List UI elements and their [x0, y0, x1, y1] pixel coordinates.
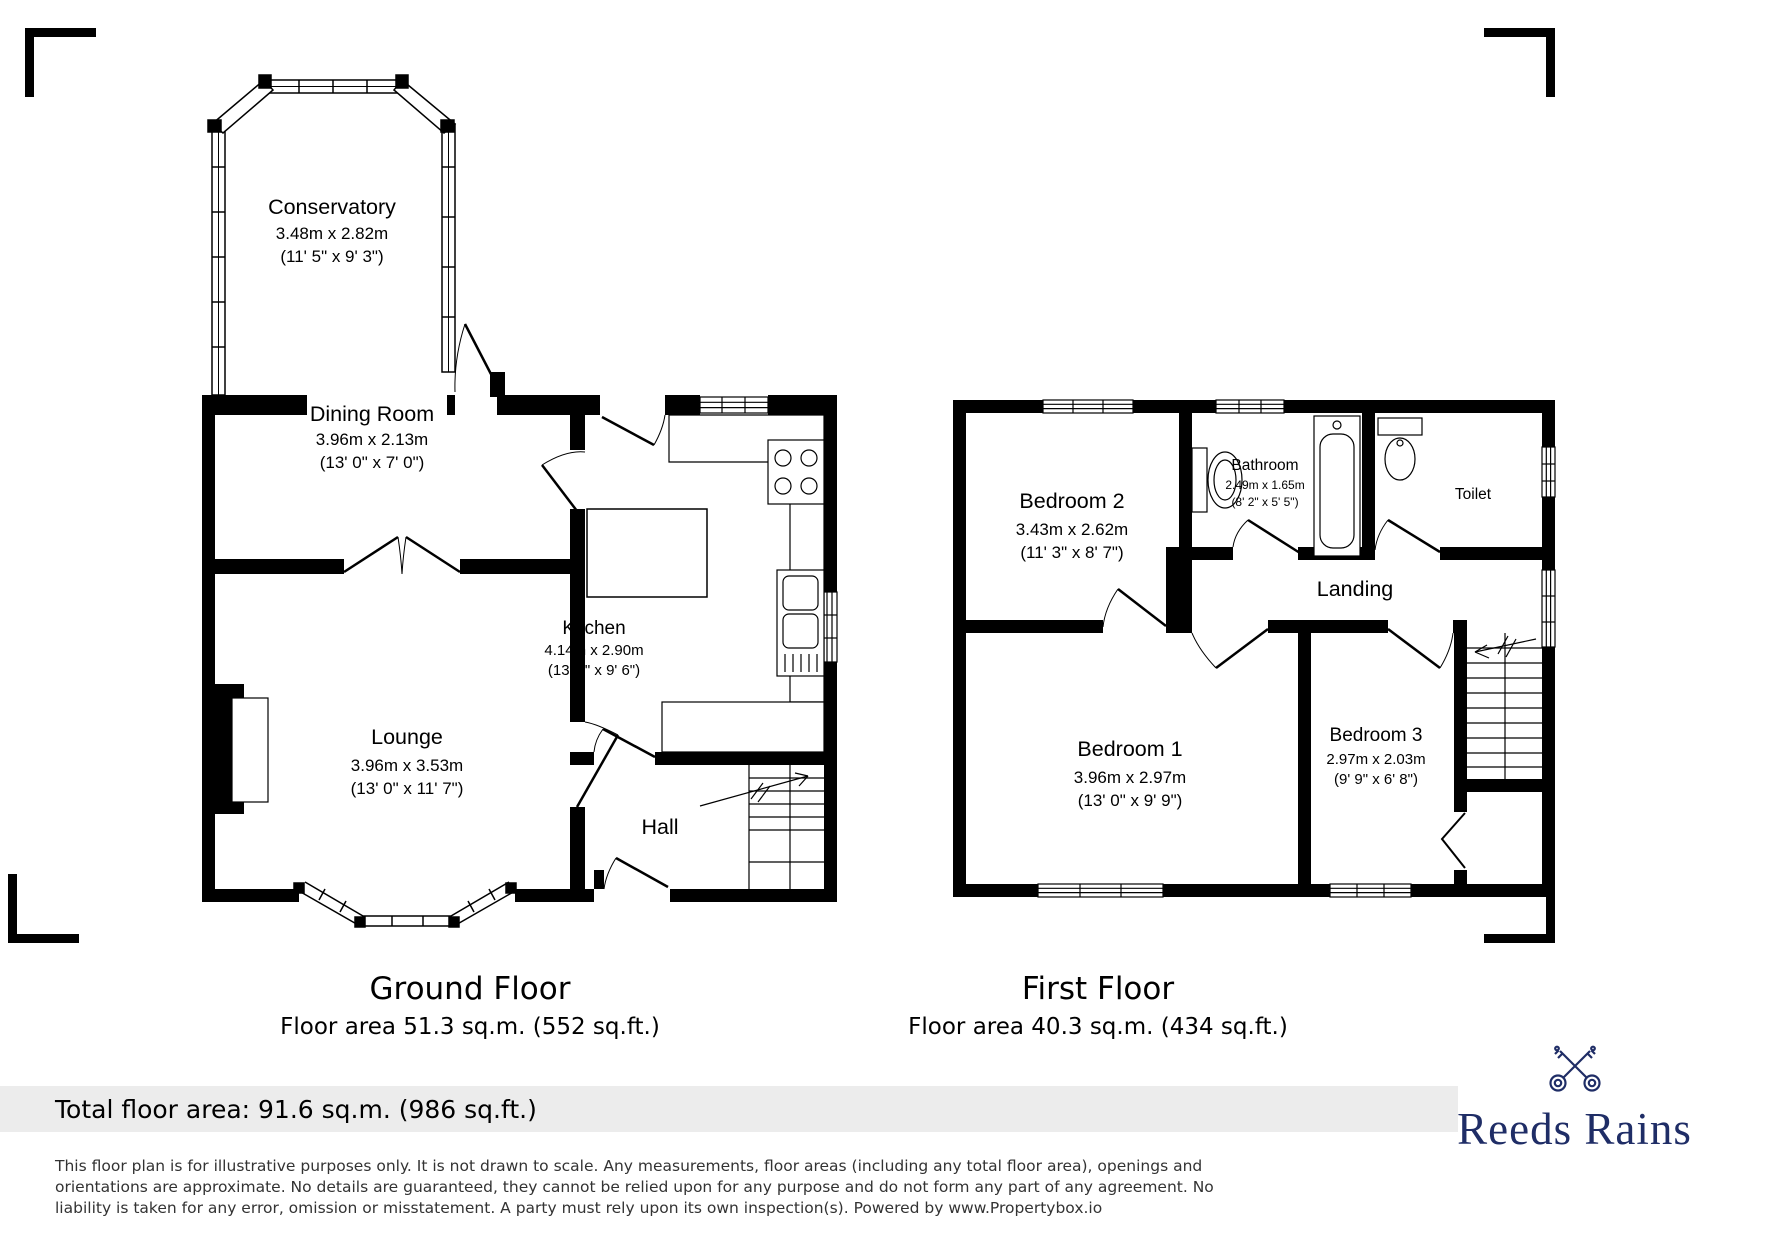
- hob-icon: [768, 440, 824, 504]
- bay-window: [294, 882, 516, 927]
- ground-floor-plan: Conservatory 3.48m x 2.82m (11' 5" x 9' …: [202, 62, 842, 942]
- room-dims-bathroom-imperial: (8' 2" x 5' 5"): [1231, 495, 1298, 509]
- room-label-kitchen: Kitchen: [562, 618, 625, 639]
- room-dims-conservatory-metric: 3.48m x 2.82m: [276, 224, 388, 243]
- room-dims-conservatory-imperial: (11' 5" x 9' 3"): [280, 247, 383, 266]
- room-label-hall: Hall: [641, 815, 678, 839]
- room-dims-bedroom-3-metric: 2.97m x 2.03m: [1326, 751, 1425, 768]
- crossed-keys-icon: [1543, 1042, 1607, 1098]
- room-label-bedroom-3: Bedroom 3: [1330, 725, 1423, 746]
- brand-wordmark: Reeds Rains: [1432, 1103, 1717, 1155]
- fireplace-recess: [232, 698, 268, 802]
- wc-icon: [1378, 418, 1422, 480]
- room-dims-kitchen-metric: 4.14m x 2.90m: [544, 642, 643, 659]
- ground-floor-title: Ground Floor: [170, 972, 770, 1006]
- room-label-bedroom-2: Bedroom 2: [1019, 489, 1124, 513]
- room-dims-lounge-metric: 3.96m x 3.53m: [351, 756, 463, 775]
- room-label-dining-room: Dining Room: [310, 402, 434, 426]
- first-walls: [953, 400, 1555, 897]
- total-area-bar: Total floor area: 91.6 sq.m. (986 sq.ft.…: [0, 1086, 1458, 1132]
- first-floor-area: Floor area 40.3 sq.m. (434 sq.ft.): [798, 1014, 1398, 1040]
- floorplan-page: Conservatory 3.48m x 2.82m (11' 5" x 9' …: [0, 0, 1771, 1239]
- room-dims-bedroom-1-imperial: (13' 0" x 9' 9"): [1078, 791, 1183, 810]
- room-dims-dining-metric: 3.96m x 2.13m: [316, 430, 428, 449]
- bath-icon: [1314, 416, 1360, 556]
- first-floor-title-block: First Floor Floor area 40.3 sq.m. (434 s…: [798, 972, 1398, 1040]
- room-dims-bedroom-3-imperial: (9' 9" x 6' 8"): [1334, 771, 1418, 788]
- ground-floor-title-block: Ground Floor Floor area 51.3 sq.m. (552 …: [170, 972, 770, 1040]
- room-label-landing: Landing: [1317, 577, 1394, 601]
- total-floor-area: Total floor area: 91.6 sq.m. (986 sq.ft.…: [55, 1095, 537, 1124]
- kitchen-island: [587, 509, 707, 597]
- brand-logo: Reeds Rains: [1432, 1042, 1717, 1155]
- ground-floor-area: Floor area 51.3 sq.m. (552 sq.ft.): [170, 1014, 770, 1040]
- room-label-bathroom: Bathroom: [1231, 457, 1298, 474]
- kitchen-back-window: [700, 397, 768, 413]
- room-dims-bedroom-1-metric: 3.96m x 2.97m: [1074, 768, 1186, 787]
- room-dims-bedroom-2-imperial: (11' 3" x 8' 7"): [1020, 543, 1123, 562]
- first-floor-plan: Bedroom 2 3.43m x 2.62m (11' 3" x 8' 7")…: [948, 392, 1560, 904]
- cupboard-bifold-door: [1442, 813, 1465, 868]
- room-dims-kitchen-imperial: (13' 7" x 9' 6"): [548, 662, 640, 679]
- corner-mark-top-left: [25, 28, 96, 97]
- room-dims-lounge-imperial: (13' 0" x 11' 7"): [351, 779, 464, 798]
- corner-mark-top-right: [1484, 28, 1555, 97]
- first-doors: [1103, 520, 1453, 668]
- room-label-toilet: Toilet: [1455, 486, 1492, 503]
- disclaimer-text: This floor plan is for illustrative purp…: [55, 1156, 1220, 1219]
- ground-stairs: [700, 765, 824, 889]
- room-label-bedroom-1: Bedroom 1: [1077, 737, 1182, 761]
- room-label-conservatory: Conservatory: [268, 195, 396, 219]
- room-dims-dining-imperial: (13' 0" x 7' 0"): [320, 453, 425, 472]
- corner-mark-bottom-left: [8, 874, 79, 943]
- sink-icon: [777, 570, 824, 676]
- room-dims-bathroom-metric: 2.49m x 1.65m: [1225, 478, 1304, 492]
- first-floor-title: First Floor: [798, 972, 1398, 1006]
- room-label-lounge: Lounge: [371, 725, 443, 749]
- room-dims-bedroom-2-metric: 3.43m x 2.62m: [1016, 520, 1128, 539]
